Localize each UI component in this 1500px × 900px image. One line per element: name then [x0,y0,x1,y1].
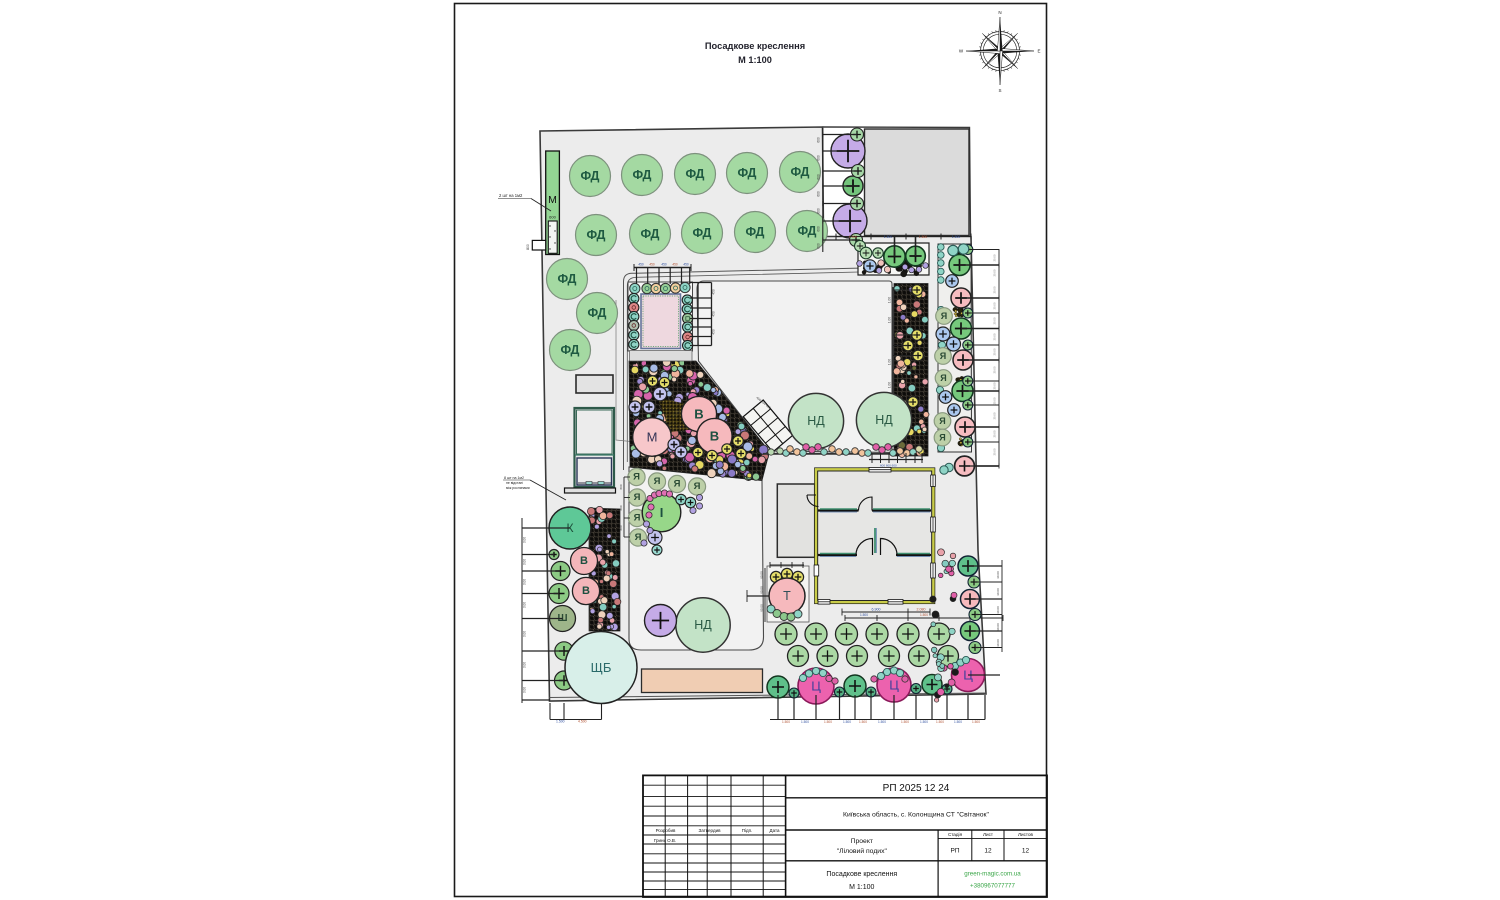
svg-text:Я: Я [635,532,642,543]
svg-text:Стадія: Стадія [948,832,963,837]
svg-text:1.00: 1.00 [888,317,892,323]
svg-text:Київська область, с. Колонщина: Київська область, с. Колонщина СТ "Світа… [843,811,989,819]
svg-text:ФД: ФД [686,167,705,181]
svg-text:30.00: 30.00 [996,606,1000,614]
svg-text:Я: Я [939,433,945,443]
svg-text:"Ліловий подих": "Ліловий подих" [837,847,888,855]
svg-text:3.00: 3.00 [523,579,527,585]
svg-text:НД: НД [875,413,893,427]
svg-text:60.00: 60.00 [760,604,764,612]
svg-text:1.00: 1.00 [888,297,892,303]
svg-text:3.00: 3.00 [523,537,527,543]
svg-text:ФД: ФД [693,226,712,240]
svg-text:Я: Я [694,481,701,492]
svg-text:1.500: 1.500 [860,613,868,617]
svg-text:1.500: 1.500 [824,720,832,724]
svg-text:E: E [1037,49,1040,54]
svg-text:М: М [647,430,658,445]
svg-text:30.00: 30.00 [993,366,997,373]
svg-text:Дата: Дата [770,828,780,833]
svg-text:Я: Я [654,476,661,487]
svg-text:600: 600 [817,174,821,180]
svg-text:Я: Я [634,513,641,524]
svg-text:450: 450 [712,311,716,317]
svg-text:1.500: 1.500 [954,720,962,724]
svg-text:60.00: 60.00 [760,571,764,579]
svg-text:450: 450 [649,263,655,267]
svg-text:450: 450 [712,289,716,295]
svg-text:РП: РП [950,848,959,855]
svg-text:30.00: 30.00 [993,430,997,437]
svg-text:600: 600 [817,155,821,161]
svg-text:Ц: Ц [811,679,821,694]
svg-text:ФД: ФД [633,168,652,182]
svg-text:Затвердив: Затвердив [699,828,722,833]
svg-text:3.00: 3.00 [523,662,527,668]
svg-text:2 шт на 1м2: 2 шт на 1м2 [499,193,523,198]
svg-text:1.500: 1.500 [901,720,909,724]
svg-text:30.00: 30.00 [993,286,997,293]
svg-text:green-magic.com.ua: green-magic.com.ua [964,871,1021,878]
svg-text:1.00: 1.00 [888,359,892,365]
svg-text:600: 600 [549,215,556,220]
svg-text:450: 450 [661,263,667,267]
svg-text:ФД: ФД [587,228,606,242]
svg-text:ФД: ФД [558,272,577,286]
svg-text:1.500: 1.500 [936,720,944,724]
svg-text:800: 800 [619,484,623,489]
svg-text:1.00: 1.00 [888,382,892,388]
svg-text:+380967077777: +380967077777 [970,883,1015,890]
svg-text:600: 600 [817,208,821,214]
svg-text:4.500: 4.500 [578,720,587,724]
svg-text:В: В [580,555,588,567]
svg-text:1.500: 1.500 [859,720,867,724]
svg-text:1.500: 1.500 [849,235,858,239]
svg-text:1.500: 1.500 [920,720,928,724]
svg-text:600: 600 [817,191,821,197]
svg-text:Я: Я [674,479,681,490]
svg-text:між рослинами: між рослинами [506,486,530,490]
svg-text:8 шт на 1м2: 8 шт на 1м2 [504,476,524,480]
svg-text:30.00: 30.00 [993,254,997,261]
svg-text:600: 600 [817,243,821,249]
svg-text:Підп.: Підп. [742,828,753,833]
svg-text:Я: Я [939,416,945,426]
svg-text:ФД: ФД [561,343,580,357]
svg-text:ФД: ФД [746,225,765,239]
svg-text:3.00: 3.00 [523,602,527,608]
svg-text:Я: Я [940,373,946,383]
svg-text:М 1:100: М 1:100 [849,884,874,891]
svg-text:Листов: Листов [1018,832,1033,837]
svg-text:30.00: 30.00 [993,382,997,389]
svg-text:3.00: 3.00 [523,559,527,565]
svg-text:ФД: ФД [791,165,810,179]
svg-text:30.00: 30.00 [993,269,997,276]
svg-text:М: М [548,194,557,206]
svg-text:Ц: Ц [889,678,899,693]
svg-text:1.500: 1.500 [920,613,928,617]
svg-text:450: 450 [683,263,689,267]
svg-text:S: S [998,88,1001,93]
svg-text:ФД: ФД [738,166,757,180]
svg-text:3.00: 3.00 [523,687,527,693]
svg-text:450: 450 [712,329,716,335]
svg-text:В: В [710,429,719,444]
svg-text:600 600 600: 600 600 600 [880,464,897,468]
svg-text:Проект: Проект [851,838,873,845]
svg-text:Я: Я [634,492,641,503]
svg-text:ФД: ФД [588,306,607,320]
svg-text:30.00: 30.00 [996,623,1000,631]
svg-text:В: В [582,585,590,597]
svg-text:В: В [694,407,703,422]
svg-text:ФД: ФД [581,169,600,183]
svg-text:600: 600 [817,137,821,143]
svg-text:30.00: 30.00 [993,317,997,324]
svg-text:3.00: 3.00 [523,631,527,637]
svg-text:30.00: 30.00 [996,571,1000,579]
svg-text:600: 600 [817,226,821,232]
svg-text:450: 450 [638,263,644,267]
svg-text:1.500: 1.500 [801,720,809,724]
svg-text:НД: НД [694,618,712,632]
svg-text:1.500: 1.500 [972,720,980,724]
svg-text:450: 450 [672,263,678,267]
svg-text:12: 12 [984,848,992,855]
svg-text:1.500: 1.500 [556,720,565,724]
svg-text:Розробив: Розробив [656,828,676,833]
svg-text:2.080: 2.080 [917,608,926,612]
svg-text:1.500: 1.500 [919,235,928,239]
svg-text:1.500: 1.500 [878,720,886,724]
svg-text:Я: Я [633,472,640,483]
svg-text:Посадкове креслення: Посадкове креслення [705,41,805,51]
svg-text:Лист: Лист [983,832,994,837]
svg-text:1.500: 1.500 [843,720,851,724]
svg-text:Посадкове креслення: Посадкове креслення [826,871,897,878]
svg-text:N: N [998,10,1001,15]
svg-text:1.500: 1.500 [952,235,961,239]
svg-text:Т: Т [783,589,791,603]
svg-text:60.00: 60.00 [760,586,764,594]
svg-text:Я: Я [941,311,947,321]
svg-text:30.00: 30.00 [996,588,1000,596]
svg-text:12: 12 [1022,848,1030,855]
svg-text:6.900: 6.900 [872,608,881,612]
svg-text:Гринь О.В.: Гринь О.В. [654,838,676,843]
svg-text:30.00: 30.00 [993,448,997,455]
svg-text:ЩБ: ЩБ [591,660,612,675]
svg-text:30.00: 30.00 [996,639,1000,647]
svg-text:30.00: 30.00 [993,302,997,309]
svg-text:1.500: 1.500 [782,720,790,724]
svg-text:ФД: ФД [641,227,660,241]
svg-text:М 1:100: М 1:100 [738,55,772,65]
svg-text:30.00: 30.00 [993,333,997,340]
svg-text:1.500: 1.500 [884,235,893,239]
svg-text:І: І [660,505,664,520]
svg-text:30.00: 30.00 [993,412,997,419]
svg-text:НД: НД [807,414,825,428]
svg-text:30.00: 30.00 [993,348,997,355]
svg-text:РП 2025 12 24: РП 2025 12 24 [883,783,950,794]
svg-text:ФД: ФД [798,224,817,238]
svg-text:Я: Я [940,351,946,361]
svg-text:800: 800 [526,244,530,250]
svg-text:30.00: 30.00 [993,397,997,404]
svg-text:не відстані: не відстані [506,481,523,485]
